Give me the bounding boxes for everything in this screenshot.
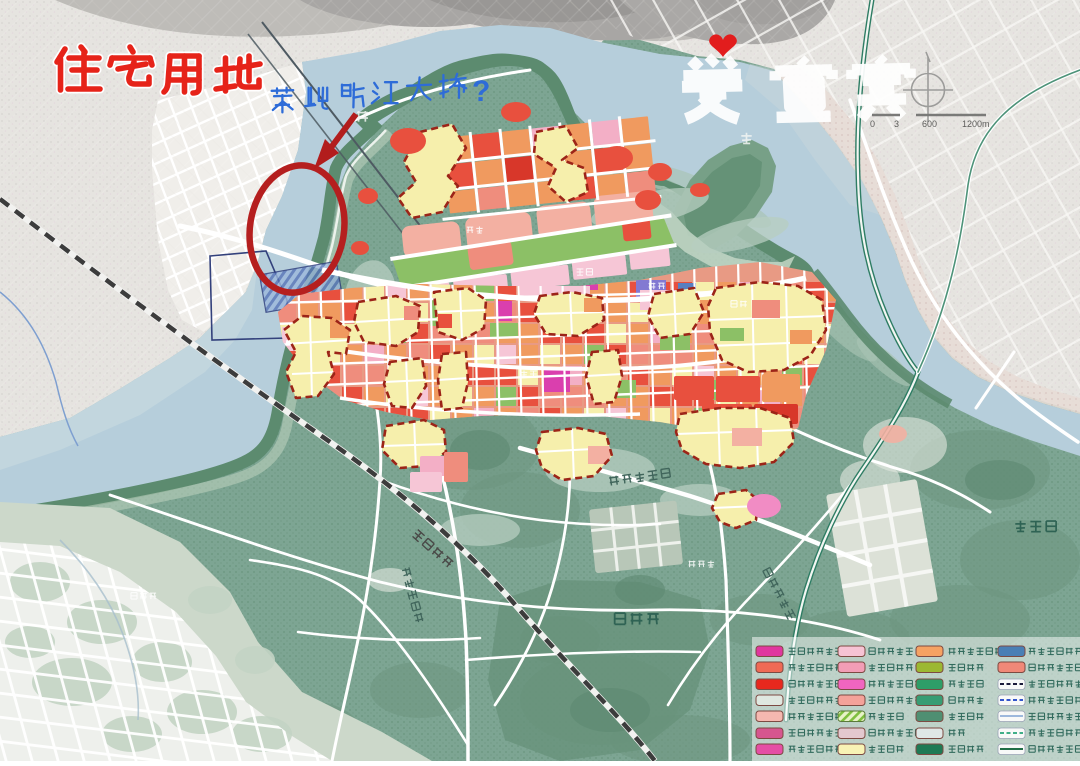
- svg-text:?: ?: [472, 75, 490, 108]
- svg-text:1200m: 1200m: [962, 119, 990, 129]
- svg-text:3: 3: [894, 119, 899, 129]
- svg-text:0: 0: [870, 119, 875, 129]
- svg-text:600: 600: [922, 119, 937, 129]
